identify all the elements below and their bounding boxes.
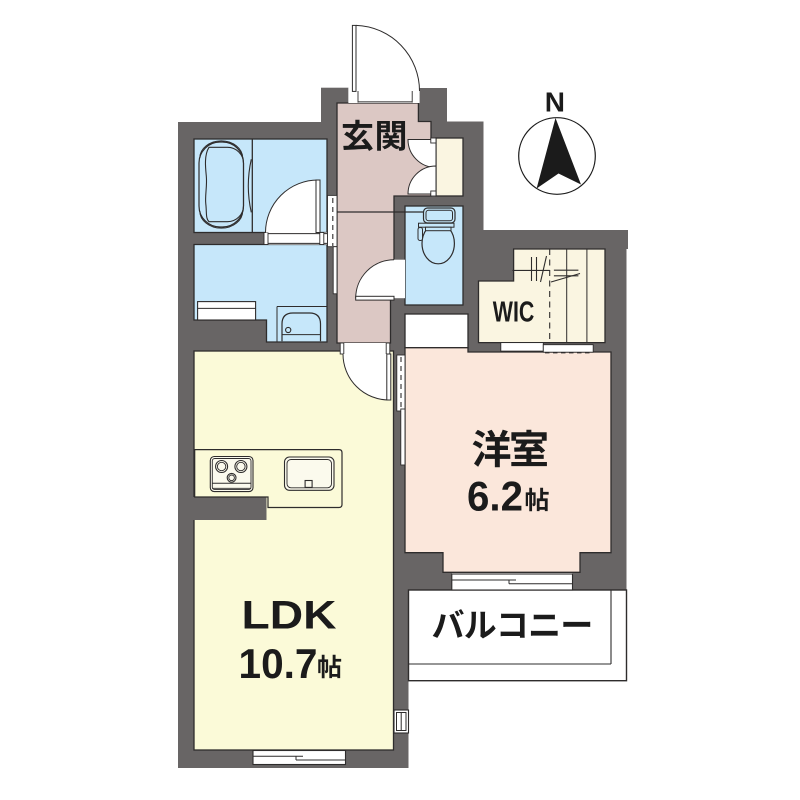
- svg-text:LDK: LDK: [242, 594, 337, 638]
- svg-text:N: N: [545, 87, 565, 118]
- svg-text:10.7: 10.7: [239, 640, 318, 687]
- svg-text:6.2: 6.2: [467, 473, 523, 520]
- svg-text:WIC: WIC: [493, 297, 535, 329]
